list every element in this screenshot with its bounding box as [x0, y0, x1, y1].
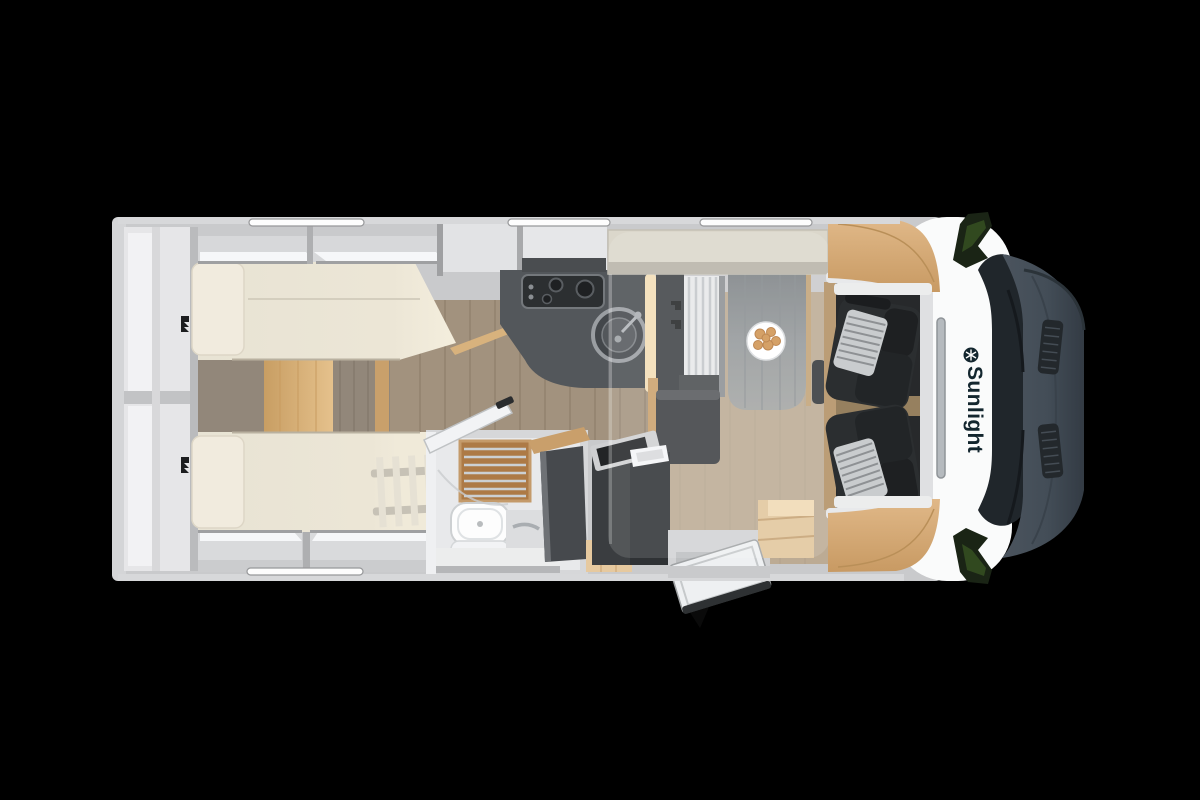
- svg-text:Sunlight: Sunlight: [963, 366, 986, 453]
